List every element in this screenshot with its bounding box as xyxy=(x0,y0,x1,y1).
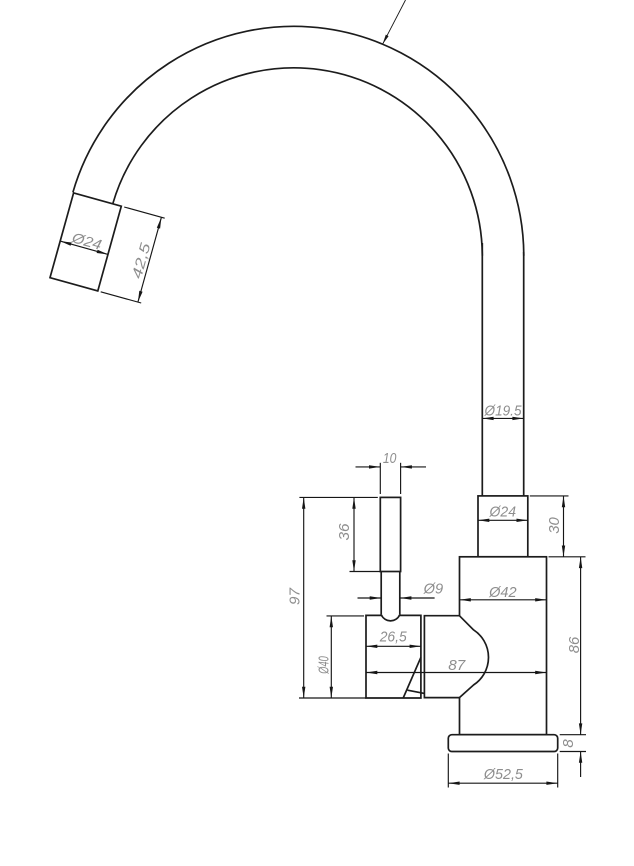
svg-text:Ø9: Ø9 xyxy=(423,582,444,598)
svg-text:Ø52,5: Ø52,5 xyxy=(483,767,523,783)
svg-text:36: 36 xyxy=(337,523,353,540)
svg-text:86: 86 xyxy=(567,637,583,654)
svg-text:Ø40: Ø40 xyxy=(316,656,332,674)
svg-text:8: 8 xyxy=(561,739,577,748)
svg-text:10: 10 xyxy=(383,451,397,467)
svg-text:97: 97 xyxy=(288,587,304,605)
svg-text:Ø42: Ø42 xyxy=(488,585,517,601)
svg-text:Ø19.5: Ø19.5 xyxy=(484,403,522,419)
svg-text:30: 30 xyxy=(547,517,563,534)
svg-text:26,5: 26,5 xyxy=(379,629,407,645)
svg-text:Ø24: Ø24 xyxy=(489,505,517,521)
svg-text:87: 87 xyxy=(448,658,466,674)
